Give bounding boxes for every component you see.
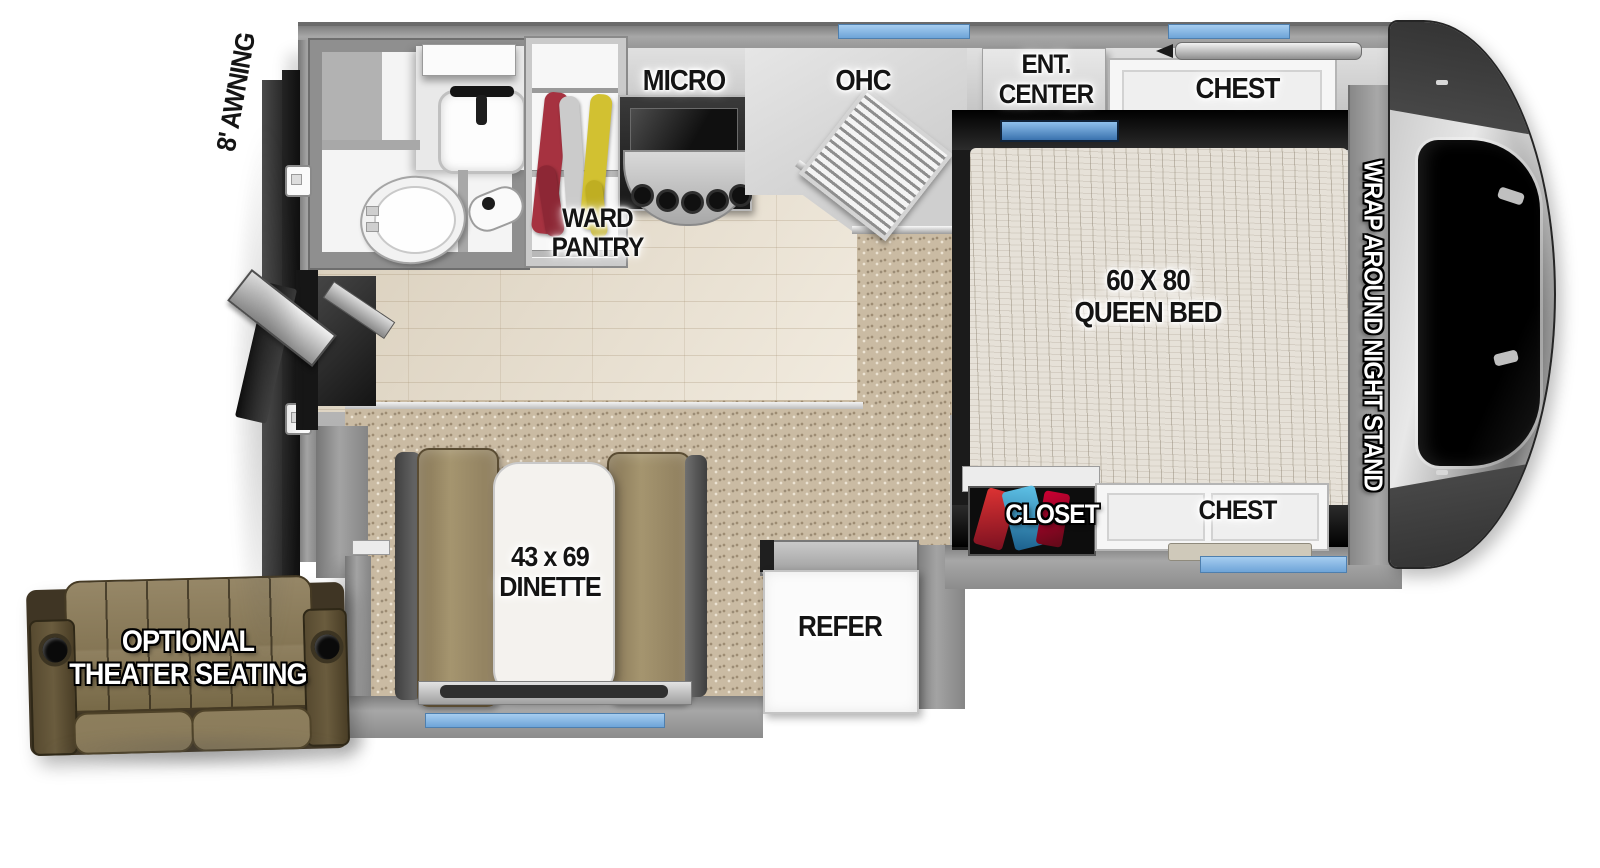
cap-latch [1436,470,1448,475]
closet-label: CLOSET [989,500,1115,528]
window-accent-top-2 [1168,24,1290,39]
theater-label-line1: OPTIONAL [62,626,314,657]
toilet-hinge [366,222,379,232]
window-accent-bed-bottom [1200,556,1347,573]
chest-bottom-label: CHEST [1172,496,1303,524]
stove-burner-icon [681,191,704,214]
ohc-label: OHC [818,66,908,96]
window-accent-top-1 [838,24,970,39]
micro-label: MICRO [630,66,738,96]
stove-burner-icon [656,189,679,212]
chest-top-label: CHEST [1172,74,1303,104]
toilet-hinge [366,206,379,216]
pantry-hanger-rod [532,88,618,93]
bathroom-divider-wall [322,140,420,150]
window-accent-headboard [1000,120,1119,142]
theater-label-line2: THEATER SEATING [53,659,323,690]
shower-drain-dot [482,197,495,210]
ward-pantry-label-line2: PANTRY [537,233,659,261]
dinette-label-line1: 43 x 69 [478,542,622,571]
toilet-seat [374,186,456,254]
camper-shadow [230,120,300,680]
cap-latch [1436,80,1448,85]
floorplan-canvas: 8' AWNING WARD PANTRY MICRO OHC ENT. CEN… [0,0,1600,868]
front-cap [1388,20,1556,569]
sofa-shadow [40,730,360,770]
wall-left-lower [298,426,318,562]
queen-bed-label-line2: QUEEN BED [1051,298,1245,328]
overhead-rail [1175,42,1362,60]
bed-step-carpet [857,225,965,415]
cap-top-trim [1388,20,1556,140]
queen-bed-label-line1: 60 X 80 [1058,266,1238,296]
bathroom-corner-wall [322,52,382,142]
window-accent-dinette [425,713,665,728]
dinette-bench-back [685,455,707,697]
cap-front-window [1418,140,1540,466]
rail-end-wedge [1156,44,1173,58]
dinette-step-tray [440,685,668,698]
ent-center-label-line1: ENT. [991,50,1101,78]
ent-center-label-line2: CENTER [991,80,1101,108]
medicine-cabinet [422,44,516,76]
night-stand-label: WRAP AROUND NIGHT STAND [1359,105,1386,547]
refer-top-edge [760,540,774,572]
dinette-label-line2: DINETTE [478,572,622,601]
refer-label: REFER [777,612,903,642]
floor-threshold-strip [345,402,863,409]
stove-burner-icon [706,189,729,212]
entry-step-ledge [352,540,390,555]
ward-pantry-label-line1: WARD [541,204,654,232]
faucet-stem-icon [476,95,487,125]
cap-bottom-trim [1388,458,1556,569]
